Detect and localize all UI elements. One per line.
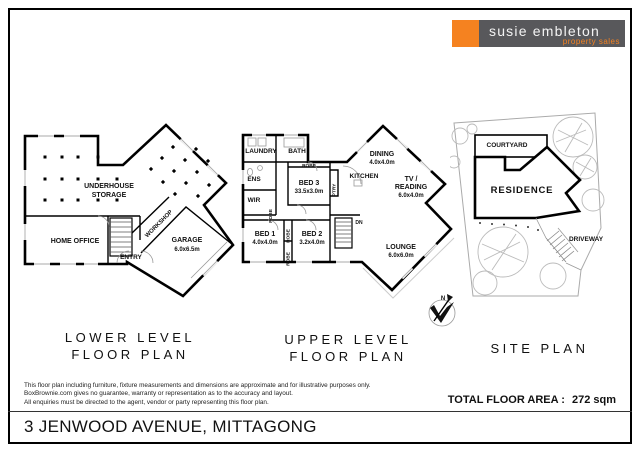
room-label-ens: ENS <box>247 176 261 183</box>
room-label-entry: ENTRY <box>120 254 142 261</box>
room-label-wir: WIR <box>248 197 261 204</box>
logo-orange-square-icon <box>452 20 479 47</box>
room-label-tv-2: READING <box>395 184 428 191</box>
room-label-robe-bed1: ROBE <box>286 228 292 243</box>
property-address: 3 JENWOOD AVENUE, MITTAGONG <box>24 417 317 437</box>
room-label-robe-bed3: ROBE <box>302 163 317 169</box>
total-floor-area-label: TOTAL FLOOR AREA : <box>448 394 565 406</box>
disclaimer-text: This floor plan including furniture, fix… <box>24 382 371 407</box>
north-label: N <box>441 296 445 302</box>
total-floor-area-value: 272 sqm <box>572 394 616 406</box>
upper-stairs <box>335 218 352 248</box>
room-label-bath: BATH <box>288 148 306 155</box>
agency-logo: susie embleton property sales <box>452 20 625 47</box>
room-label-robe-bed2: ROBE <box>286 251 292 266</box>
room-dim-dining: 4.0x4.0m <box>369 160 394 166</box>
lower-floor-plan-drawing: UNDERHOUSE STORAGE HOME OFFICE ENTRY WOR… <box>20 112 240 302</box>
footer-divider <box>8 411 632 412</box>
lower-plan-title-line2: FLOOR PLAN <box>30 346 230 363</box>
stairs-label-dn: DN <box>355 220 363 226</box>
lower-plan-title-line1: LOWER LEVEL <box>30 329 230 346</box>
room-label-home-office: HOME OFFICE <box>51 238 100 245</box>
site-plan-title: SITE PLAN <box>452 340 627 357</box>
upper-plan-title-line2: FLOOR PLAN <box>248 348 448 365</box>
room-dim-bed2: 3.2x4.0m <box>299 240 324 246</box>
room-label-ptry: PTRY <box>332 183 338 196</box>
site-plan-title-line: SITE PLAN <box>452 340 627 357</box>
agency-tagline: property sales <box>563 37 620 46</box>
room-label-lounge: LOUNGE <box>386 244 416 251</box>
room-label-underhouse-storage-1: UNDERHOUSE <box>84 183 134 190</box>
logo-bar: susie embleton property sales <box>479 20 625 47</box>
lower-outer-walls <box>25 125 233 296</box>
room-label-garage: GARAGE <box>172 237 203 244</box>
north-arrow-pointer-icon <box>430 302 454 323</box>
site-plan-drawing: COURTYARD RESIDENCE DRIVEWAY <box>450 100 635 305</box>
site-label-courtyard: COURTYARD <box>487 142 528 149</box>
floor-plan-page: susie embleton property sales <box>0 0 640 452</box>
disclaimer-line-1: This floor plan including furniture, fix… <box>24 382 371 390</box>
site-label-driveway: DRIVEWAY <box>569 236 604 243</box>
total-floor-area: TOTAL FLOOR AREA : 272 sqm <box>444 394 616 406</box>
site-label-residence: RESIDENCE <box>491 185 554 196</box>
room-dim-bed3: 33.5x3.0m <box>295 189 324 195</box>
lower-plan-title: LOWER LEVEL FLOOR PLAN <box>30 329 230 363</box>
room-label-kitchen: KITCHEN <box>350 173 379 180</box>
room-label-bed3: BED 3 <box>299 180 320 187</box>
room-label-robe-wir: ROBE <box>268 208 274 223</box>
room-dim-tv: 6.0x4.0m <box>398 193 423 199</box>
room-label-bed1: BED 1 <box>255 231 276 238</box>
upper-plan-title: UPPER LEVEL FLOOR PLAN <box>248 331 448 365</box>
room-label-laundry: LAUNDRY <box>245 148 277 155</box>
room-label-tv-1: TV / <box>405 176 418 183</box>
upper-plan-title-line1: UPPER LEVEL <box>248 331 448 348</box>
room-label-underhouse-storage-2: STORAGE <box>92 192 127 199</box>
room-label-dining: DINING <box>370 151 395 158</box>
disclaimer-line-2: BoxBrownie.com gives no guarantee, warra… <box>24 390 371 398</box>
upper-floor-plan-drawing: LAUNDRY BATH ENS WIR ROBE ROBE BED 3 33.… <box>240 110 460 310</box>
room-dim-garage: 6.0x6.5m <box>174 247 199 253</box>
room-dim-bed1: 4.0x4.0m <box>252 240 277 246</box>
room-label-bed2: BED 2 <box>302 231 323 238</box>
room-dim-lounge: 6.0x6.0m <box>388 253 413 259</box>
disclaimer-line-3: All enquiries must be directed to the ag… <box>24 399 371 407</box>
